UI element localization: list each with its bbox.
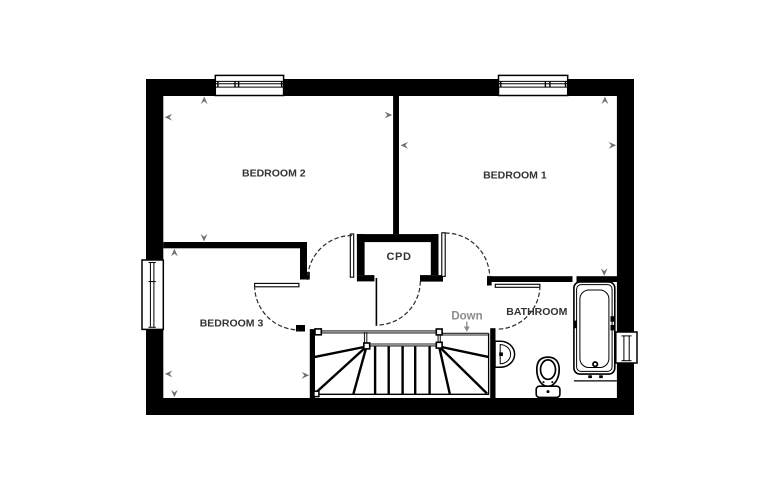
svg-text:BEDROOM 2: BEDROOM 2 <box>242 168 306 180</box>
svg-text:Down: Down <box>451 310 482 322</box>
svg-text:BATHROOM: BATHROOM <box>506 306 567 318</box>
svg-text:CPD: CPD <box>386 251 411 263</box>
svg-text:BEDROOM 3: BEDROOM 3 <box>200 317 264 329</box>
svg-text:BEDROOM 1: BEDROOM 1 <box>483 169 547 181</box>
